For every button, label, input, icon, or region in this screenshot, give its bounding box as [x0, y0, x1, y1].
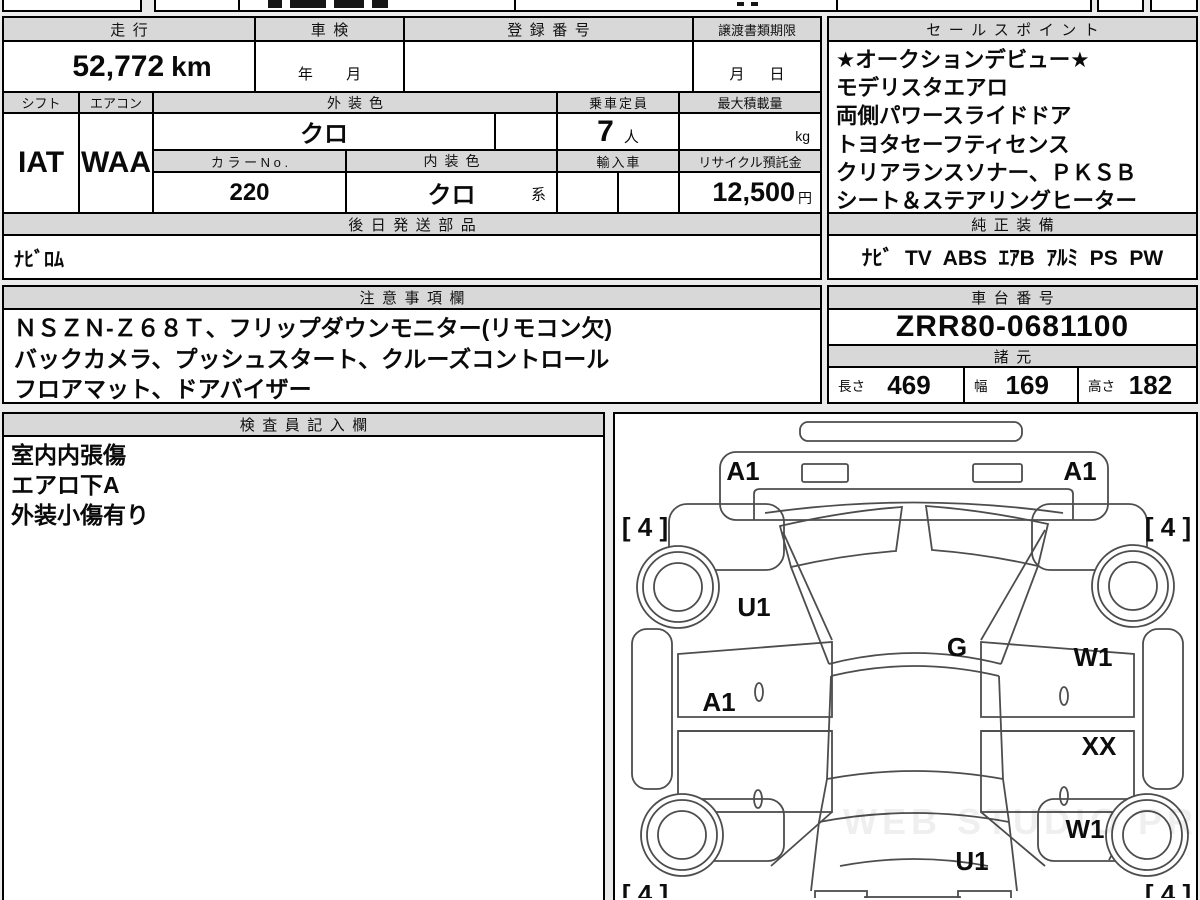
damage-label: G	[947, 632, 967, 662]
text-line: 外装小傷有り	[11, 500, 597, 530]
mileage-header: 走行	[2, 16, 256, 42]
text-line: トヨタセーフティセンス	[836, 131, 1190, 159]
roof-sides	[827, 676, 1003, 779]
cut-row-cell	[514, 0, 838, 12]
later-parts-label: 後日発送部品	[341, 214, 484, 235]
damage-label: W1	[1074, 642, 1113, 672]
interior-color-header: 内装色	[345, 149, 558, 173]
notes-header: 注意事項欄	[2, 285, 822, 310]
spec-length-cell: 長さ469	[827, 366, 965, 404]
rear-left-wheel	[641, 794, 723, 876]
shaken-value-cell: 年 月	[254, 40, 405, 93]
sales-points-body: ★オークションデビュー★モデリスタエアロ両側パワースライドドアトヨタセーフティセ…	[827, 40, 1198, 214]
import-label: 輸入車	[595, 152, 642, 171]
text-line: バックカメラ、プッシュスタート、クルーズコントロール	[14, 344, 810, 375]
capacity-header: 乗車定員	[556, 91, 680, 114]
front-right-wheel	[1092, 545, 1174, 627]
shift-value-cell: IAT	[2, 112, 80, 214]
exterior-color-value-cell: クロ	[152, 112, 496, 151]
cut-row-cell	[2, 0, 142, 12]
door-handle-mark	[1060, 687, 1068, 705]
color-no-header: カ ラ ー N o .	[152, 149, 347, 173]
damage-label: XX	[1082, 731, 1117, 761]
registration-label: 登録番号	[500, 19, 598, 40]
recycle-unit: 円	[798, 178, 812, 208]
shaken-placeholder: 年 月	[298, 63, 361, 84]
damage-label: [ 4 ]	[1145, 879, 1191, 898]
exterior-color-label: 外装色	[320, 93, 390, 113]
damage-label: [ 4 ]	[622, 879, 668, 898]
damage-label: A1	[702, 687, 735, 717]
right-rocker-panel	[1143, 629, 1183, 789]
right-taillight	[958, 891, 1011, 898]
text-line: クリアランスソナー、ＰＫＳＢ	[836, 159, 1190, 187]
interior-color-suffix: 系	[531, 183, 546, 204]
spec-height-cell: 高さ182	[1077, 366, 1198, 404]
text-line: 両側パワースライドドア	[836, 102, 1190, 130]
shift-header: シフト	[2, 91, 80, 114]
cut-row-cell	[1150, 0, 1198, 12]
shift-value: IAT	[18, 146, 64, 180]
right-headlight	[973, 464, 1022, 482]
shaken-label: 車検	[303, 19, 356, 40]
front-bumper-strip	[800, 422, 1022, 441]
aircon-header: エアコン	[78, 91, 154, 114]
text-line: ＮＳＺＮ-Ｚ６８Ｔ、フリップダウンモニター(リモコン欠)	[14, 313, 810, 344]
notes-body: ＮＳＺＮ-Ｚ６８Ｔ、フリップダウンモニター(リモコン欠)バックカメラ、プッシュス…	[2, 308, 822, 404]
text-line: フロアマット、ドアバイザー	[14, 374, 810, 404]
equipment-header: 純正装備	[827, 212, 1198, 236]
cut-row-cell	[154, 0, 240, 12]
equipment-items: ﾅﾋﾞ TV ABS ｴｱB ｱﾙﾐ PS PW	[862, 242, 1163, 272]
later-parts-header: 後日発送部品	[2, 212, 822, 236]
damage-label: A1	[726, 456, 759, 486]
deadline-value-cell: 月 日	[692, 40, 822, 93]
recycle-header: リサイクル預託金	[678, 149, 822, 173]
grille-line	[754, 489, 1073, 520]
max-load-value-cell: kg	[678, 112, 822, 151]
damage-label: U1	[737, 592, 770, 622]
damage-diagram-panel: WEB STUDIO PRO A1A1[ 4 ][ 4 ]U1GW1A1XXW1…	[613, 412, 1198, 900]
later-parts-value: ﾅﾋﾞﾛﾑ	[14, 243, 64, 272]
mileage-value-cell: 52,772km	[2, 40, 256, 93]
spec-length-label: 長さ	[838, 375, 865, 395]
equipment-value-cell: ﾅﾋﾞ TV ABS ｴｱB ｱﾙﾐ PS PW	[827, 234, 1198, 280]
chassis-header: 車台番号	[827, 285, 1198, 310]
color-no-value: 220	[229, 179, 269, 207]
deadline-label: 譲渡書類期限	[718, 20, 796, 39]
cut-text-fragment	[372, 0, 388, 8]
text-line: シート＆ステアリングヒーター	[836, 187, 1190, 214]
exterior-color-sub-cell	[494, 112, 558, 151]
specs-header: 諸元	[827, 344, 1198, 368]
interior-color-value: クロ	[428, 175, 476, 210]
inspector-header: 検査員記入欄	[2, 412, 605, 437]
equipment-title: 純正装備	[964, 214, 1062, 235]
max-load-unit: kg	[795, 128, 810, 144]
auction-sheet: 走行 車検 登録番号 譲渡書類期限 52,772km 年 月 月 日 シフト エ…	[0, 0, 1200, 900]
capacity-value-cell: 7人	[556, 112, 680, 151]
inspector-title: 検査員記入欄	[232, 414, 375, 435]
sales-points-header: セールスポイント	[827, 16, 1198, 42]
aircon-value: WAA	[81, 146, 151, 180]
damage-label: [ 4 ]	[1145, 512, 1191, 542]
deadline-header: 譲渡書類期限	[692, 16, 822, 42]
recycle-value-cell: 12,500円	[678, 171, 822, 214]
aircon-value-cell: WAA	[78, 112, 154, 214]
deadline-placeholder: 月 日	[729, 63, 784, 84]
registration-header: 登録番号	[403, 16, 694, 42]
notes-title: 注意事項欄	[352, 287, 472, 308]
recycle-value: 12,500	[712, 177, 795, 208]
max-load-label: 最大積載量	[717, 93, 782, 112]
spec-width-label: 幅	[974, 375, 988, 395]
interior-color-value-cell: クロ 系	[345, 171, 558, 214]
chassis-value-cell: ZRR80-0681100	[827, 308, 1198, 346]
import-header: 輸入車	[556, 149, 680, 173]
text-line: モデリスタエアロ	[836, 74, 1190, 102]
cut-text-fragment	[268, 0, 282, 8]
interior-color-label: 内装色	[417, 151, 487, 171]
capacity-unit: 人	[624, 116, 639, 147]
cut-text-fragment	[290, 0, 326, 8]
spec-height-label: 高さ	[1088, 375, 1115, 395]
inspector-body: 室内内張傷エアロ下A外装小傷有り	[2, 435, 605, 900]
aircon-label: エアコン	[90, 93, 142, 112]
specs-title: 諸元	[986, 346, 1039, 367]
text-line: エアロ下A	[11, 470, 597, 500]
mileage-value: 52,772	[72, 50, 164, 84]
cut-row-cell	[1097, 0, 1144, 12]
left-wiper-zone	[780, 507, 902, 567]
damage-label: U1	[955, 846, 988, 876]
color-no-value-cell: 220	[152, 171, 347, 214]
text-line: 室内内張傷	[11, 440, 597, 470]
max-load-header: 最大積載量	[678, 91, 822, 114]
registration-value-cell	[403, 40, 694, 93]
door-handle-mark	[755, 683, 763, 701]
import-value-cell-2	[617, 171, 680, 214]
text-line: ★オークションデビュー★	[836, 46, 1190, 74]
shift-label: シフト	[21, 93, 60, 112]
exterior-color-header: 外装色	[152, 91, 558, 114]
spec-width-value: 169	[988, 370, 1068, 401]
color-no-label: カ ラ ー N o .	[211, 152, 288, 171]
chassis-title: 車台番号	[964, 287, 1062, 308]
left-taillight	[815, 891, 867, 898]
spec-length-value: 469	[865, 370, 953, 401]
cut-text-fragment	[751, 2, 758, 6]
left-headlight	[802, 464, 848, 482]
shaken-header: 車検	[254, 16, 405, 42]
later-parts-value-cell: ﾅﾋﾞﾛﾑ	[2, 234, 822, 280]
damage-label: W1	[1066, 814, 1105, 844]
capacity-label: 乗車定員	[587, 93, 649, 112]
left-front-door	[678, 642, 832, 717]
front-left-wheel	[637, 546, 719, 628]
windshield-top	[765, 503, 1063, 514]
side-glass-lines	[783, 530, 1045, 640]
damage-label: [ 4 ]	[622, 512, 668, 542]
import-value-cell-1	[556, 171, 619, 214]
cut-text-fragment	[334, 0, 364, 8]
left-rocker-panel	[632, 629, 672, 789]
cut-text-fragment	[737, 2, 744, 6]
car-diagram: WEB STUDIO PRO A1A1[ 4 ][ 4 ]U1GW1A1XXW1…	[615, 414, 1196, 898]
recycle-label: リサイクル預託金	[698, 152, 801, 171]
cut-row-cell	[836, 0, 1092, 12]
capacity-value: 7	[597, 115, 614, 149]
spec-height-value: 182	[1115, 370, 1186, 401]
exterior-color-value: クロ	[300, 114, 348, 149]
watermark: WEB STUDIO PRO	[843, 801, 1196, 842]
a-pillars	[791, 566, 1038, 664]
rear-bumper-bar	[865, 897, 960, 898]
roof-front-band	[829, 653, 1001, 676]
mileage-unit: km	[171, 51, 211, 83]
mileage-label: 走行	[103, 19, 156, 40]
damage-label: A1	[1063, 456, 1096, 486]
chassis-value: ZRR80-0681100	[896, 310, 1129, 344]
sales-points-title: セールスポイント	[919, 19, 1107, 40]
spec-width-cell: 幅169	[963, 366, 1079, 404]
